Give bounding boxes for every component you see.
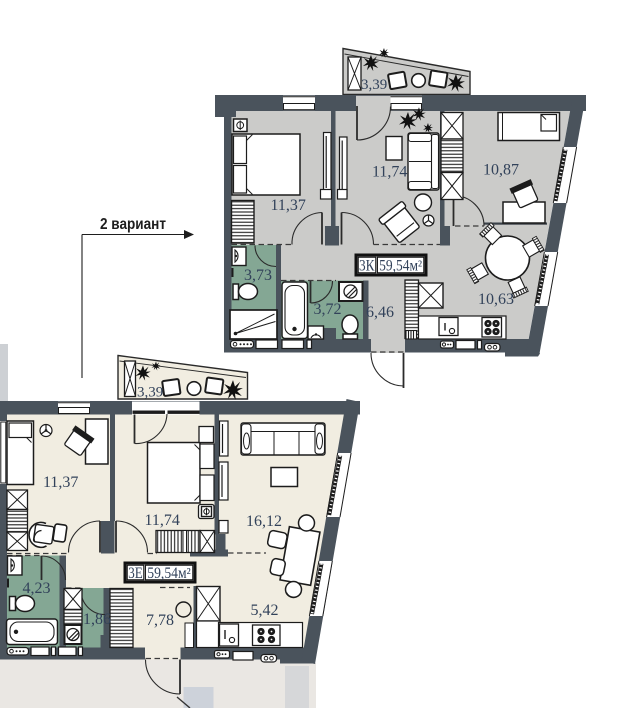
svg-text:7,78: 7,78 bbox=[146, 612, 174, 629]
svg-text:5,42: 5,42 bbox=[251, 602, 279, 619]
svg-text:11,74: 11,74 bbox=[372, 164, 407, 181]
svg-text:3,72: 3,72 bbox=[314, 301, 342, 318]
svg-text:3,39: 3,39 bbox=[137, 385, 163, 401]
svg-text:10,87: 10,87 bbox=[483, 162, 519, 179]
svg-text:3Е: 3Е bbox=[128, 565, 143, 582]
svg-text:6,46: 6,46 bbox=[366, 304, 394, 321]
svg-text:3,73: 3,73 bbox=[244, 267, 272, 284]
svg-text:11,74: 11,74 bbox=[145, 512, 180, 529]
svg-text:4,23: 4,23 bbox=[23, 580, 51, 597]
svg-text:3,39: 3,39 bbox=[361, 77, 387, 93]
svg-text:59,54м²: 59,54м² bbox=[379, 258, 422, 275]
svg-text:2 вариант: 2 вариант bbox=[100, 216, 166, 233]
svg-text:10,63: 10,63 bbox=[478, 291, 514, 308]
svg-text:11,37: 11,37 bbox=[271, 197, 306, 214]
svg-text:11,37: 11,37 bbox=[43, 474, 78, 491]
svg-text:16,12: 16,12 bbox=[246, 513, 282, 530]
svg-text:3К: 3К bbox=[359, 258, 375, 275]
svg-text:59,54м²: 59,54м² bbox=[147, 565, 191, 582]
svg-text:1,86: 1,86 bbox=[83, 611, 111, 628]
